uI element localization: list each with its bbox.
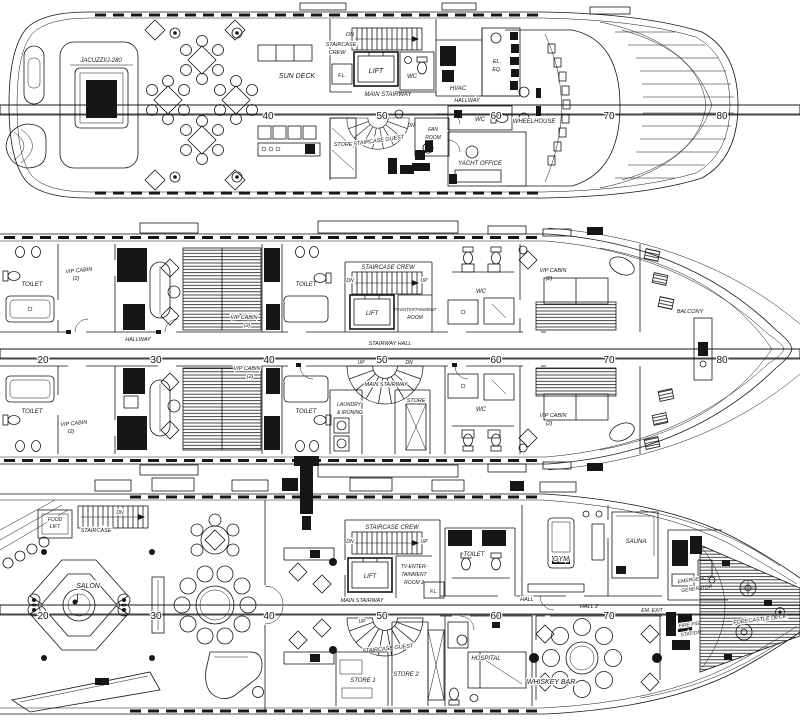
staircase-crew-label-d2: STAIRCASE CREW xyxy=(361,265,416,271)
vip-a2-label: (2) xyxy=(73,276,80,282)
deck-sun: JACUZZI/J-280 SUN DECK DN STAIRCASE CREW… xyxy=(0,3,800,198)
laundry-label2: & IRONING xyxy=(337,410,363,416)
vip-cabin-fwd-stbd xyxy=(519,368,637,452)
tv2-label3: ROOM 2 xyxy=(404,580,424,586)
hospital-label: HOSPITAL xyxy=(471,656,500,662)
vip-c-label: VIP CABIN xyxy=(540,268,567,274)
fl-label-d3: F.L. xyxy=(430,589,438,595)
ruler-d3-60: 60 xyxy=(490,611,502,622)
store-label-d2: STORE xyxy=(407,398,426,404)
el-eq-label1: EL. xyxy=(493,59,501,65)
ruler-sun-80: 80 xyxy=(716,111,728,122)
vip-e2-label: (2) xyxy=(247,374,254,380)
toilet-label-a: TOILET xyxy=(22,282,44,288)
ruler-sun-60: 60 xyxy=(490,111,502,122)
salon-label: SALON xyxy=(76,583,101,590)
vip-b-label: VIP CABIN xyxy=(231,315,258,321)
corridor-main xyxy=(440,596,662,630)
vip-cabin-fwd-port xyxy=(519,246,637,330)
store-label: STORE xyxy=(334,142,353,148)
sun-deck-bar xyxy=(258,45,320,156)
hvac-label: HVAC xyxy=(450,86,467,92)
main-stairway-label-d3: MAIN STAIRWAY xyxy=(341,598,384,604)
yacht-deck-plan-blueprint: JACUZZI/J-280 SUN DECK DN STAIRCASE CREW… xyxy=(0,0,800,720)
dn-guest-label: DN xyxy=(407,123,415,129)
food-lift-label2: LIFT xyxy=(50,524,61,530)
up-d3: UP xyxy=(421,539,429,545)
deck-cabins: TOILET TOILET VIP CABIN (2) VIP CABIN (2… xyxy=(0,221,800,477)
em-exit-label: EM. EXIT xyxy=(641,608,663,614)
crew-staircase-cabins xyxy=(352,272,422,294)
lift-label-d3: LIFT xyxy=(364,574,378,580)
dn2-d2: DN xyxy=(405,360,413,366)
vip-e-label: VIP CABIN xyxy=(234,366,261,372)
fl-label: F.L. xyxy=(338,73,346,79)
wc-upper-label: WC xyxy=(476,289,487,295)
vip-f2-label: (2) xyxy=(546,421,553,427)
dn-aft-label: DN xyxy=(116,510,124,516)
lift-label: LIFT xyxy=(369,68,384,75)
ruler-cabins xyxy=(0,349,800,359)
wc-mid-label: WC xyxy=(475,117,486,123)
staircase-crew-label-d3: STAIRCASE CREW xyxy=(365,525,420,531)
sauna xyxy=(612,512,658,578)
wheelhouse-label: WHEELHOUSE xyxy=(513,119,557,125)
vip-c2-label: (2) xyxy=(546,276,553,282)
fan-room-label1: FAN xyxy=(428,127,438,133)
ruler-sun-50: 50 xyxy=(376,111,388,122)
up-d2: UP xyxy=(421,278,429,284)
stores-main xyxy=(336,622,444,706)
ruler-sun-70: 70 xyxy=(603,111,615,122)
sun-deck-label: SUN DECK xyxy=(279,73,316,80)
hallway-label-d2: HALLWAY xyxy=(125,337,151,343)
sauna-label: SAUNA xyxy=(626,539,647,545)
food-lift-label1: FOOD xyxy=(48,517,63,523)
deck-main: FOOD LIFT DN STAIRCASE SALON xyxy=(0,456,800,714)
ruler-d2-20: 20 xyxy=(37,355,49,366)
hall-label: HALL xyxy=(520,597,534,603)
hull-outline-sun xyxy=(9,3,738,198)
tv-room-label1: TV-ENTERTAINMENT xyxy=(394,307,437,312)
pantry-equipment xyxy=(388,140,433,174)
jacuzzi-label: JACUZZI/J-280 xyxy=(79,58,122,64)
gym xyxy=(522,505,608,596)
store2-label: STORE 2 xyxy=(393,672,419,678)
staircase-crew-label2: CREW xyxy=(329,50,347,56)
dn-d3: DN xyxy=(346,539,354,545)
vip-d-label: VIP CABIN xyxy=(60,420,88,429)
vip-a-label: VIP CABIN xyxy=(65,267,93,276)
crew-staircase-main xyxy=(352,532,422,554)
lift-label-d2: LIFT xyxy=(366,311,380,317)
tv2-label1: TV-ENTER- xyxy=(401,564,428,570)
stairway-hall-label: STAIRWAY HALL xyxy=(369,341,412,347)
fan-room-label2: ROOM xyxy=(425,135,441,141)
ruler-sun-40: 40 xyxy=(262,111,274,122)
wc-room-upper xyxy=(448,247,514,324)
aft-staircase-main xyxy=(78,506,148,528)
ruler-d2-30: 30 xyxy=(150,355,162,366)
wc-lower-label: WC xyxy=(476,407,487,413)
aft-staircase-label: STAIRCASE xyxy=(81,528,112,534)
hallway-label: HALLWAY xyxy=(454,98,480,104)
wc-room-sun xyxy=(400,52,434,90)
laundry-label1: LAUNDRY xyxy=(337,402,361,408)
ruler-d3-30: 30 xyxy=(150,611,162,622)
tv-room-label2: ROOM xyxy=(407,315,423,321)
ruler-d3-70: 70 xyxy=(603,611,615,622)
toilet-room-main xyxy=(445,528,515,596)
toilet-label-c: TOILET xyxy=(22,409,44,415)
wc-label: WC xyxy=(407,74,418,80)
whiskey-bar-label: WHISKEY BAR xyxy=(527,679,576,686)
dn-label: DN xyxy=(346,32,354,38)
toilet-label-d3: TOILET xyxy=(464,552,486,558)
tv-room xyxy=(398,295,432,332)
staircase-guest-label: STAIRCASE GUEST xyxy=(353,134,405,147)
ruler-d2-70: 70 xyxy=(603,355,615,366)
toilet-label-b: TOILET xyxy=(296,282,318,288)
ruler-d2-80: 80 xyxy=(716,355,728,366)
balcony-label: BALCONY xyxy=(677,309,704,315)
forecastle xyxy=(700,545,800,672)
ruler-d3-20: 20 xyxy=(37,611,49,622)
whiskey-bar xyxy=(529,616,662,700)
el-eq-label2: EQ. xyxy=(492,67,501,73)
store-sun xyxy=(330,118,356,178)
ga-drawing: JACUZZI/J-280 SUN DECK DN STAIRCASE CREW… xyxy=(0,0,800,720)
store1-label: STORE 1 xyxy=(350,678,376,684)
yacht-office xyxy=(448,132,526,186)
laundry-room xyxy=(334,418,349,451)
gym-label: GYM xyxy=(553,556,569,563)
toilet-label-d: TOILET xyxy=(296,409,318,415)
ruler-main xyxy=(0,605,800,615)
vip-d2-label: (2) xyxy=(68,429,75,435)
ruler-d3-50: 50 xyxy=(376,611,388,622)
main-stairway-label: MAIN STAIRWAY xyxy=(365,92,413,98)
up2-d3: UP xyxy=(359,619,367,625)
staircase-crew-label: STAIRCASE xyxy=(326,42,357,48)
vip-b2-label: (2) xyxy=(244,323,251,329)
ruler-d2-40: 40 xyxy=(263,355,275,366)
ruler-d3-40: 40 xyxy=(263,611,275,622)
dn-d2: DN xyxy=(346,278,354,284)
ruler-d2-60: 60 xyxy=(490,355,502,366)
yacht-office-label: YACHT OFFICE xyxy=(458,161,503,167)
store-room-d2 xyxy=(406,404,426,450)
up2-d2: UP xyxy=(358,360,366,366)
wheelhouse xyxy=(505,30,620,186)
tv2-label2: TAINMENT xyxy=(401,572,427,578)
vip-f-label: VIP CABIN xyxy=(540,413,567,419)
ruler-d2-50: 50 xyxy=(376,355,388,366)
crew-staircase-sun xyxy=(352,28,422,50)
main-stairway-label-d2: MAIN STAIRWAY xyxy=(365,382,408,388)
